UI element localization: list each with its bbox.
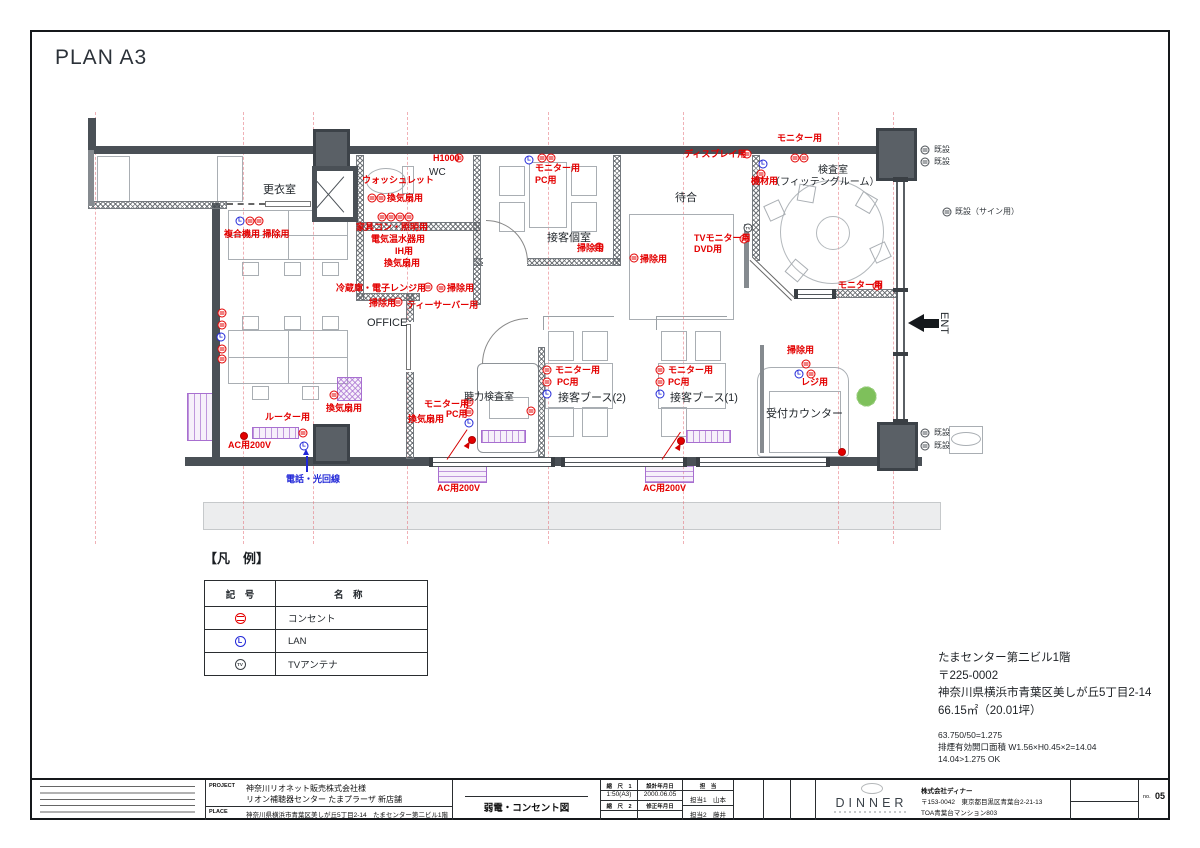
booth-partition: [656, 316, 727, 330]
outlet-symbol-icon: [368, 194, 377, 203]
lan-symbol-icon: L: [235, 636, 246, 647]
ac-indoor-unit: [686, 430, 731, 443]
outlet-symbol-icon: [802, 360, 811, 369]
outlet-symbol-icon: [218, 309, 227, 318]
logo-oval-icon: [861, 783, 883, 794]
annotation-label: 既設（サイン用）: [955, 208, 1019, 216]
outlet-symbol-icon: [630, 254, 639, 263]
design-date-label: 設計年月日: [638, 782, 682, 790]
chair: [661, 407, 687, 437]
room-label: OFFICE: [367, 317, 407, 329]
interior-wall: [473, 155, 481, 305]
project-name-2: リオン補聴器センター たまプラーザ 新店舗: [246, 794, 402, 805]
door-swing: [482, 318, 528, 364]
outlet-symbol-icon: [547, 154, 556, 163]
chair: [571, 202, 597, 232]
existing-outlet-icon: [921, 429, 930, 438]
door-leaf: [406, 324, 411, 370]
mullion: [893, 419, 908, 425]
stacked-empty-cell: [1070, 780, 1138, 820]
furniture: [97, 156, 130, 202]
existing-outlet-icon: [921, 146, 930, 155]
sheet-number-cell: no. 05: [1138, 780, 1170, 820]
annotation-label: 既設: [934, 429, 950, 437]
window: [430, 457, 554, 467]
outlet-symbol-icon: [543, 378, 552, 387]
annotation-label: 換気扇用: [387, 194, 423, 203]
chair: [302, 386, 319, 400]
lan-symbol-icon: L: [759, 160, 768, 169]
window: [795, 289, 835, 299]
annotation-label: PC用: [535, 176, 557, 185]
legend-name-outlet: コンセント: [276, 611, 427, 625]
existing-outlet-icon: [921, 158, 930, 167]
place-value: 神奈川県横浜市青葉区美しが丘5丁目2-14 たまセンター第二ビル1階: [246, 809, 448, 819]
chair: [322, 262, 339, 276]
wall: [88, 146, 912, 154]
phone-line: [306, 456, 308, 472]
room-label: 受付カウンター: [766, 405, 843, 421]
annotation-label: 電話・光回線: [286, 475, 340, 484]
lan-symbol-icon: L: [543, 390, 552, 399]
site-building: たまセンター第二ビル1階: [938, 650, 1151, 668]
outlet-symbol-icon: [218, 355, 227, 364]
sliding-door: [227, 203, 265, 205]
annotation-label: 換気扇用: [408, 415, 444, 424]
annotation-label: TVモニター用: [694, 234, 751, 243]
revision-notes-cell: [30, 780, 205, 820]
existing-fixture: [951, 432, 981, 446]
power-feed-icon: [468, 436, 476, 444]
lan-symbol-icon: L: [465, 419, 474, 428]
ac-indoor-unit: [481, 430, 526, 443]
annotation-label: PC用: [668, 378, 690, 387]
annotation-label: 既設: [934, 442, 950, 450]
logo-word: DINNER: [834, 796, 909, 810]
annotation-label: 掃除用: [640, 255, 667, 264]
chair: [695, 331, 721, 361]
outlet-symbol-icon: [538, 154, 547, 163]
chair: [582, 407, 608, 437]
room-label: 聴力検査室: [464, 388, 514, 403]
tv-symbol-icon: TV: [744, 224, 753, 233]
staff-cell: 担 当 担当1 山本 担当2 藤井: [682, 780, 733, 820]
empty-cell-1: [733, 780, 763, 820]
outlet-symbol-icon: [218, 345, 227, 354]
annotation-label: モニター用: [668, 366, 713, 375]
booth-partition: [543, 316, 614, 330]
window: [562, 457, 686, 467]
calc-line-2: 排煙有効開口面積 W1.56×H0.45×2=14.04: [938, 741, 1151, 753]
annotation-label: AC用200V: [228, 441, 271, 450]
company-cell: DINNER 株式会社ディナー 〒153-0042 東京都目黒区青葉台2-21-…: [815, 780, 1070, 820]
site-postal: 〒225-0002: [938, 668, 1151, 686]
mullion: [893, 288, 908, 292]
legend-name-tv: TVアンテナ: [276, 657, 427, 671]
annotation-label: H1000: [433, 154, 460, 163]
chair: [284, 316, 301, 330]
legend-header-name: 名 称: [276, 587, 427, 601]
furniture: [629, 214, 734, 320]
annotation-label: 掃除用: [447, 284, 474, 293]
title-block: PROJECT 神奈川リオネット販売株式会社様 リオン補聴器センター たまプラー…: [30, 778, 1170, 820]
annotation-label: 換気扇用: [326, 404, 362, 413]
outdoor-unit: [187, 393, 214, 441]
sheet-no-label: no.: [1143, 794, 1151, 800]
outlet-symbol-icon: [543, 366, 552, 375]
annotation-label: 既設: [934, 158, 950, 166]
entrance-arrow-icon: [924, 319, 939, 328]
power-feed-icon: [838, 448, 846, 456]
wall: [88, 118, 96, 152]
outlet-symbol-icon: [330, 391, 339, 400]
outlet-symbol-icon: [246, 217, 255, 226]
project-cell: PROJECT 神奈川リオネット販売株式会社様 リオン補聴器センター たまプラー…: [205, 780, 452, 820]
router-shelf: [252, 427, 299, 439]
pillar: [313, 129, 350, 169]
outlet-symbol-icon: [791, 154, 800, 163]
chair: [322, 316, 339, 330]
fitting-room-circle: [816, 216, 850, 250]
elevator: [312, 166, 358, 222]
partition-wall: [88, 150, 94, 206]
place-label: PLACE: [209, 809, 228, 815]
annotation-label: 既設: [934, 146, 950, 154]
calc-line-3: 14.04>1.275 OK: [938, 753, 1151, 765]
chair: [242, 262, 259, 276]
room-label: WC: [429, 167, 446, 178]
outlet-symbol-icon: [255, 217, 264, 226]
outlet-symbol-icon: [800, 154, 809, 163]
existing-outlet-icon: [921, 442, 930, 451]
legend-name-lan: LAN: [276, 636, 427, 647]
lan-symbol-icon: L: [525, 156, 534, 165]
annotation-label: ウォッシュレット: [362, 176, 434, 185]
room-label: ENT: [938, 312, 950, 334]
legend: 【凡 例】 記 号 名 称 コンセント L LAN TV TVアンテナ: [204, 548, 428, 676]
lan-symbol-icon: L: [656, 390, 665, 399]
legend-row-lan: L LAN: [205, 629, 427, 652]
empty-cell-3: [790, 780, 815, 820]
staff-1: 担当1 山本: [683, 794, 733, 804]
power-feed-icon: [677, 437, 685, 445]
legend-row-tv: TV TVアンテナ: [205, 652, 427, 675]
annotation-label: 家具コン・照明用: [356, 223, 428, 232]
outlet-symbol-icon: [218, 321, 227, 330]
interior-wall: [538, 347, 545, 457]
outlet-symbol-icon: [656, 378, 665, 387]
project-name-1: 神奈川リオネット販売株式会社様: [246, 783, 366, 794]
room-label: 待合: [675, 189, 697, 205]
company-address: 〒153-0042 東京都目黒区青葉台2-21-13: [921, 796, 1042, 806]
pillar: [877, 422, 918, 471]
lan-symbol-icon: L: [300, 442, 309, 451]
design-date-value: 2000.06.05: [638, 791, 682, 798]
scale1-label: 縮 尺 1: [601, 782, 637, 790]
storefront-glass: [896, 179, 905, 425]
lan-symbol-icon: L: [236, 217, 245, 226]
site-address: 神奈川県横浜市青葉区美しが丘5丁目2-14: [938, 685, 1151, 703]
room-label: 接客ブース(1): [670, 389, 738, 405]
outlet-symbol-icon: [387, 213, 396, 222]
chair: [582, 331, 608, 361]
outlet-symbol-icon: [378, 213, 387, 222]
date-cell: 設計年月日 2000.06.05 修正年月日: [637, 780, 682, 820]
legend-header-symbol: 記 号: [205, 581, 276, 606]
revision-date-label: 修正年月日: [638, 802, 682, 810]
empty-cell-2: [763, 780, 790, 820]
sheet-no-value: 05: [1155, 791, 1165, 801]
legend-table: 記 号 名 称 コンセント L LAN TV TVアンテナ: [204, 580, 428, 676]
vent-fan: [337, 377, 362, 401]
dinner-logo: DINNER: [834, 783, 909, 813]
site-notes: たまセンター第二ビル1階 〒225-0002 神奈川県横浜市青葉区美しが丘5丁目…: [938, 650, 1151, 765]
annotation-label: AC用200V: [437, 484, 480, 493]
furniture: [217, 156, 243, 202]
chair: [499, 166, 525, 196]
office-desks: [228, 330, 348, 384]
entrance-arrow-icon: [908, 314, 924, 332]
room-label: 更衣室: [263, 181, 296, 197]
annotation-label: モニター用: [535, 164, 580, 173]
legend-row-outlet: コンセント: [205, 606, 427, 629]
legend-header-row: 記 号 名 称: [205, 581, 427, 606]
project-label: PROJECT: [209, 783, 235, 789]
pillar: [876, 128, 917, 181]
partition-wall: [760, 345, 764, 453]
annotation-label: 掃除用: [577, 244, 604, 253]
chair: [242, 316, 259, 330]
room-label: 接客ブース(2): [558, 389, 626, 405]
annotation-label: 電気温水器用: [371, 235, 425, 244]
staff-label: 担 当: [683, 782, 733, 790]
room-label: 接客個室: [547, 229, 591, 245]
annotation-label: PC用: [557, 378, 579, 387]
chair: [548, 331, 574, 361]
chair: [284, 262, 301, 276]
pillar: [313, 424, 350, 464]
annotation-label: 掃除用: [787, 346, 814, 355]
company-name: 株式会社ディナー: [921, 785, 973, 795]
mullion: [893, 177, 908, 182]
outlet-symbol-icon: [299, 429, 308, 438]
annotation-label: 換気扇用: [384, 259, 420, 268]
annotation-label: 掃除用: [369, 299, 396, 308]
legend-title: 【凡 例】: [204, 548, 428, 567]
existing-outlet-icon: [943, 208, 952, 217]
interior-wall: [613, 155, 621, 266]
interior-wall: [88, 201, 227, 209]
annotation-label: 複合機用 掃除用: [224, 230, 290, 239]
annotation-label: ルーター用: [265, 413, 310, 422]
grid-line: [95, 112, 96, 544]
annotation-label: モニター用: [777, 134, 822, 143]
door-leaf: [265, 201, 311, 207]
annotation-label: モニター用: [838, 281, 883, 290]
revision-rule-lines: [40, 786, 195, 814]
staff-2: 担当2 藤井: [683, 809, 733, 819]
window: [697, 457, 829, 467]
annotation-label: PC用: [446, 410, 468, 419]
tv-antenna-symbol-icon: TV: [235, 659, 246, 670]
power-feed-icon: [240, 432, 248, 440]
annotation-label: ディスプレイ用: [684, 150, 746, 159]
outlet-symbol-icon: [235, 613, 246, 624]
outlet-symbol-icon: [437, 284, 446, 293]
room-label: （フィッテングルーム）: [770, 173, 880, 188]
outlet-symbol-icon: [396, 213, 405, 222]
angled-wall: [750, 257, 795, 301]
chair: [548, 407, 574, 437]
scale2-label: 縮 尺 2: [601, 802, 637, 810]
annotation-label: 冷蔵庫・電子レンジ用: [336, 284, 426, 293]
annotation-label: AC用200V: [643, 484, 686, 493]
scale-cell: 縮 尺 1 1:50(A3) 縮 尺 2: [600, 780, 637, 820]
annotation-label: IH用: [395, 247, 413, 256]
chair: [661, 331, 687, 361]
annotation-label: モニター用: [555, 366, 600, 375]
outlet-symbol-icon: [377, 194, 386, 203]
drawing-title-cell: 弱電・コンセント図: [452, 780, 600, 820]
annotation-label: DVD用: [694, 245, 722, 254]
annotation-label: ティーサーバー用: [407, 301, 478, 310]
site-area: 66.15㎡（20.01坪）: [938, 703, 1151, 721]
calc-line-1: 63.750/50=1.275: [938, 729, 1151, 741]
outlet-symbol-icon: [527, 407, 536, 416]
scale1-value: 1:50(A3): [601, 791, 637, 798]
lan-symbol-icon: L: [217, 333, 226, 342]
annotation-label: レジ用: [801, 378, 828, 387]
mullion: [893, 352, 908, 356]
outlet-symbol-icon: [405, 213, 414, 222]
chair: [252, 386, 269, 400]
outlet-symbol-icon: [656, 366, 665, 375]
drawing-title: 弱電・コンセント図: [453, 800, 600, 814]
company-building: TOA青葉台マンション803: [921, 807, 997, 817]
